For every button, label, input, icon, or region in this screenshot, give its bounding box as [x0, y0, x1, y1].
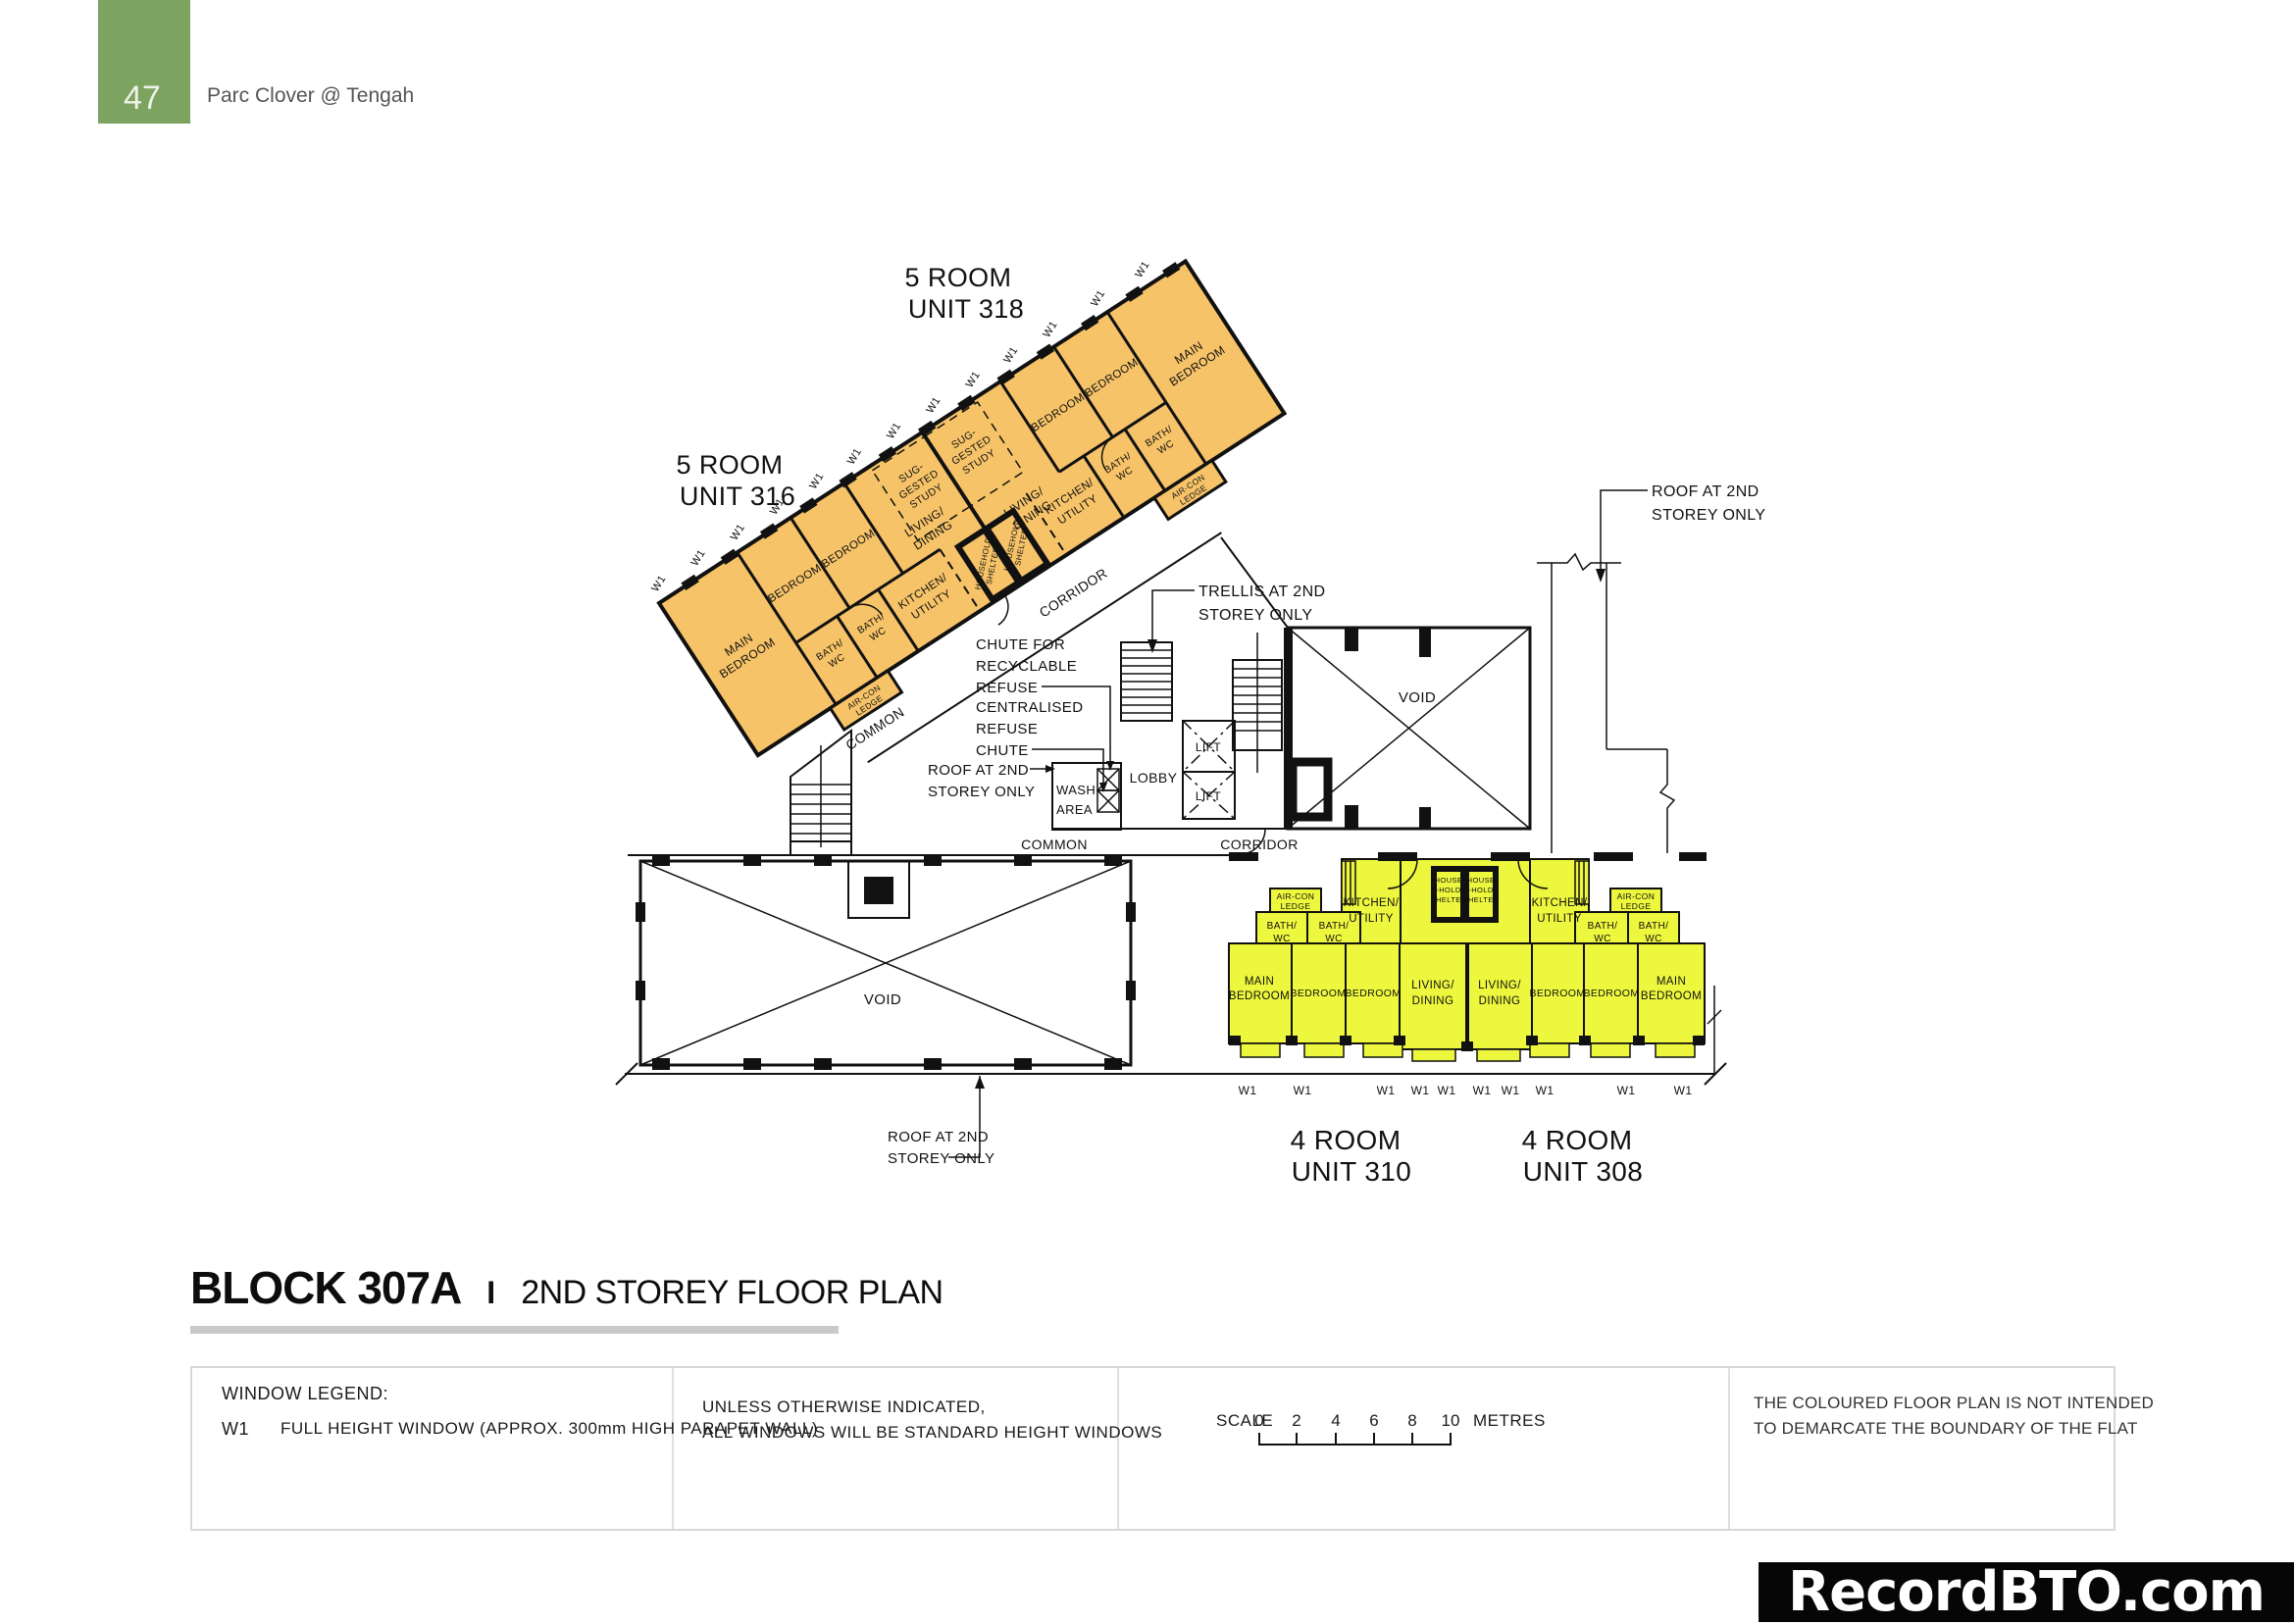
room-label: KITCHEN/ [1532, 897, 1588, 909]
void-right: VOID [1284, 628, 1530, 829]
window-tag-w1: W1 [807, 471, 826, 491]
room-label: BEDROOM [1345, 988, 1401, 999]
room-label: MAIN [1245, 976, 1274, 988]
disclaimer-line2: TO DEMARCATE THE BOUNDARY OF THE FLAT [1754, 1419, 2138, 1439]
room-label: MAIN [1657, 976, 1686, 988]
plan-title: 2ND STOREY FLOOR PLAN [521, 1274, 943, 1312]
window-legend-title: WINDOW LEGEND: [222, 1384, 388, 1404]
unit-318-label: 5 ROOM UNIT 318 [905, 263, 1025, 324]
scale-tick-label: 10 [1436, 1411, 1465, 1431]
block-title: BLOCK 307A [190, 1261, 461, 1314]
void-left: VOID [636, 856, 1136, 1070]
room-label: LEDGE [1281, 901, 1311, 911]
svg-text:LIFT: LIFT [1196, 789, 1222, 803]
svg-text:SHELTER: SHELTER [1463, 895, 1500, 904]
svg-text:WASH: WASH [1056, 783, 1096, 797]
room-label: BATH/ [1588, 921, 1618, 932]
legend-strip: WINDOW LEGEND: W1 FULL HEIGHT WINDOW (AP… [190, 1366, 2116, 1531]
svg-text:RECYCLABLE: RECYCLABLE [976, 658, 1077, 675]
lift-1: LIFT [1183, 721, 1235, 772]
svg-text:LIFT: LIFT [1196, 740, 1222, 754]
scale-bar [1258, 1444, 1452, 1446]
common-label: COMMON [1021, 837, 1088, 852]
window-tag-w1: W1 [924, 395, 943, 416]
window-tag-w1: W1 [845, 446, 864, 467]
watermark-banner: RecordBTO.com [1759, 1562, 2294, 1622]
svg-text:HOUSE: HOUSE [1435, 876, 1463, 885]
title-separator: I [486, 1275, 495, 1311]
scale-tick-label: 8 [1398, 1411, 1427, 1431]
room-label: KITCHEN/ [1344, 897, 1400, 909]
room-label: DINING [1412, 995, 1454, 1007]
room-label: WC [1645, 934, 1661, 944]
scale-tick [1296, 1433, 1298, 1444]
legend-divider [672, 1368, 674, 1529]
room-label: WC [1325, 934, 1342, 944]
svg-text:5 ROOM: 5 ROOM [677, 450, 784, 480]
svg-text:STOREY ONLY: STOREY ONLY [1198, 607, 1312, 624]
window-tag-w1: W1 [1473, 1084, 1492, 1097]
window-tag-w1: W1 [729, 522, 747, 542]
window-tag-w1: W1 [649, 574, 668, 594]
svg-text:AREA: AREA [1056, 802, 1093, 817]
room-label: UTILITY [1349, 913, 1394, 925]
disclaimer-line1: THE COLOURED FLOOR PLAN IS NOT INTENDED [1754, 1394, 2154, 1413]
svg-text:CHUTE: CHUTE [976, 742, 1029, 759]
svg-text:REFUSE: REFUSE [976, 721, 1038, 737]
room-label: BEDROOM [1290, 988, 1346, 999]
room-label: BATH/ [1267, 921, 1298, 932]
trellis-annotation: TRELLIS AT 2ND STOREY ONLY [1147, 584, 1326, 653]
room-label: DINING [1479, 995, 1521, 1007]
svg-text:SHELTER: SHELTER [1431, 895, 1467, 904]
svg-text:UNIT 316: UNIT 316 [680, 482, 795, 511]
room-label: LIVING/ [1411, 980, 1454, 991]
room-label: AIR-CON [1277, 891, 1315, 901]
scale-tick [1450, 1433, 1452, 1444]
roof-annotation-bottom: ROOF AT 2ND STOREY ONLY [888, 1076, 994, 1167]
window-tag-w1: W1 [1674, 1084, 1693, 1097]
scale-tick-label: 0 [1245, 1411, 1274, 1431]
window-tag-w1: W1 [1133, 259, 1151, 279]
window-legend-code: W1 [222, 1419, 249, 1440]
svg-text:ROOF AT 2ND: ROOF AT 2ND [888, 1129, 989, 1145]
svg-text:CENTRALISED: CENTRALISED [976, 699, 1083, 716]
window-tag-w1: W1 [1294, 1084, 1312, 1097]
window-tag-w1: W1 [1411, 1084, 1430, 1097]
legend-divider [1117, 1368, 1119, 1529]
room-label: BEDROOM [1529, 988, 1585, 999]
windows-note-line2: ALL WINDOWS WILL BE STANDARD HEIGHT WIND… [702, 1423, 1162, 1443]
scale-tick [1373, 1433, 1375, 1444]
room-label: BATH/ [1319, 921, 1350, 932]
svg-text:5 ROOM: 5 ROOM [905, 263, 1012, 292]
svg-text:CHUTE FOR: CHUTE FOR [976, 636, 1065, 653]
title-block: BLOCK 307A I 2ND STOREY FLOOR PLAN [190, 1261, 943, 1314]
window-tag-w1: W1 [1617, 1084, 1636, 1097]
svg-text:UNIT 310: UNIT 310 [1292, 1156, 1412, 1187]
scale-unit: METRES [1473, 1411, 1546, 1431]
svg-text:UNIT 318: UNIT 318 [908, 294, 1024, 324]
svg-text:VOID: VOID [864, 991, 901, 1008]
window-tag-w1: W1 [964, 370, 983, 390]
window-tag-w1: W1 [688, 547, 707, 568]
roof-annotation-left: ROOF AT 2ND STOREY ONLY [928, 762, 1055, 800]
unit-316-label: 5 ROOM UNIT 316 [677, 450, 796, 511]
window-tag-w1: W1 [1377, 1084, 1396, 1097]
room-label: LIVING/ [1478, 980, 1521, 991]
unit-310-label: 4 ROOM UNIT 310 [1291, 1125, 1412, 1187]
svg-text:4 ROOM: 4 ROOM [1522, 1125, 1633, 1155]
window-tag-w1: W1 [1001, 345, 1020, 366]
roof-structure-right [1537, 554, 1674, 853]
lobby-label: LOBBY [1130, 770, 1178, 786]
window-tag-w1: W1 [1438, 1084, 1456, 1097]
scale-tick [1411, 1433, 1413, 1444]
svg-text:STOREY ONLY: STOREY ONLY [928, 784, 1035, 800]
svg-text:UNIT 308: UNIT 308 [1523, 1156, 1644, 1187]
svg-text:HOUSE: HOUSE [1467, 876, 1496, 885]
window-tag-w1: W1 [1502, 1084, 1520, 1097]
window-tag-w1: W1 [1536, 1084, 1555, 1097]
watermark-text: RecordBTO.com [1788, 1560, 2265, 1624]
lift-2: LIFT [1183, 772, 1235, 819]
svg-text:REFUSE: REFUSE [976, 680, 1038, 696]
scale-tick-label: 6 [1359, 1411, 1389, 1431]
legend-divider [1728, 1368, 1730, 1529]
unit-308-label: 4 ROOM UNIT 308 [1522, 1125, 1644, 1187]
room-label: BATH/ [1639, 921, 1669, 932]
svg-text:-HOLD: -HOLD [1468, 886, 1494, 894]
room-label: AIR-CON [1617, 891, 1656, 901]
window-tag-w1: W1 [1089, 288, 1107, 309]
title-underline [190, 1326, 839, 1334]
scale-tick-label: 4 [1321, 1411, 1351, 1431]
room-label: BEDROOM [1229, 990, 1290, 1002]
scale-tick [1335, 1433, 1337, 1444]
roof-annotation-right: ROOF AT 2ND STOREY ONLY [1596, 483, 1765, 583]
room-label: WC [1273, 934, 1290, 944]
room-label: BEDROOM [1641, 990, 1702, 1002]
room-label: WC [1594, 934, 1610, 944]
room-label: UTILITY [1537, 913, 1582, 925]
window-tag-w1: W1 [1239, 1084, 1257, 1097]
trellis-stair [1121, 642, 1172, 721]
wash-area: WASH AREA [1052, 763, 1121, 830]
four-room-block: HOUSE -HOLD SHELTER HOUSE -HOLD SHELTER [1229, 852, 1707, 1097]
room-label: LEDGE [1621, 901, 1652, 911]
stair-left [790, 731, 851, 855]
room-label: BEDROOM [1583, 988, 1639, 999]
svg-text:VOID: VOID [1399, 689, 1436, 706]
scale-tick [1258, 1433, 1260, 1444]
svg-text:4 ROOM: 4 ROOM [1291, 1125, 1402, 1155]
svg-text:ROOF AT 2ND: ROOF AT 2ND [1652, 483, 1759, 500]
windows-note-line1: UNLESS OTHERWISE INDICATED, [702, 1397, 986, 1417]
svg-text:STOREY ONLY: STOREY ONLY [1652, 507, 1765, 524]
stair-right [1233, 633, 1282, 773]
window-tag-w1: W1 [885, 421, 903, 441]
scale-tick-label: 2 [1282, 1411, 1311, 1431]
svg-text:TRELLIS AT 2ND: TRELLIS AT 2ND [1198, 584, 1326, 600]
svg-text:ROOF AT 2ND: ROOF AT 2ND [928, 762, 1029, 779]
svg-text:-HOLD: -HOLD [1436, 886, 1461, 894]
window-tag-w1: W1 [1041, 319, 1059, 339]
svg-text:STOREY ONLY: STOREY ONLY [888, 1150, 994, 1167]
